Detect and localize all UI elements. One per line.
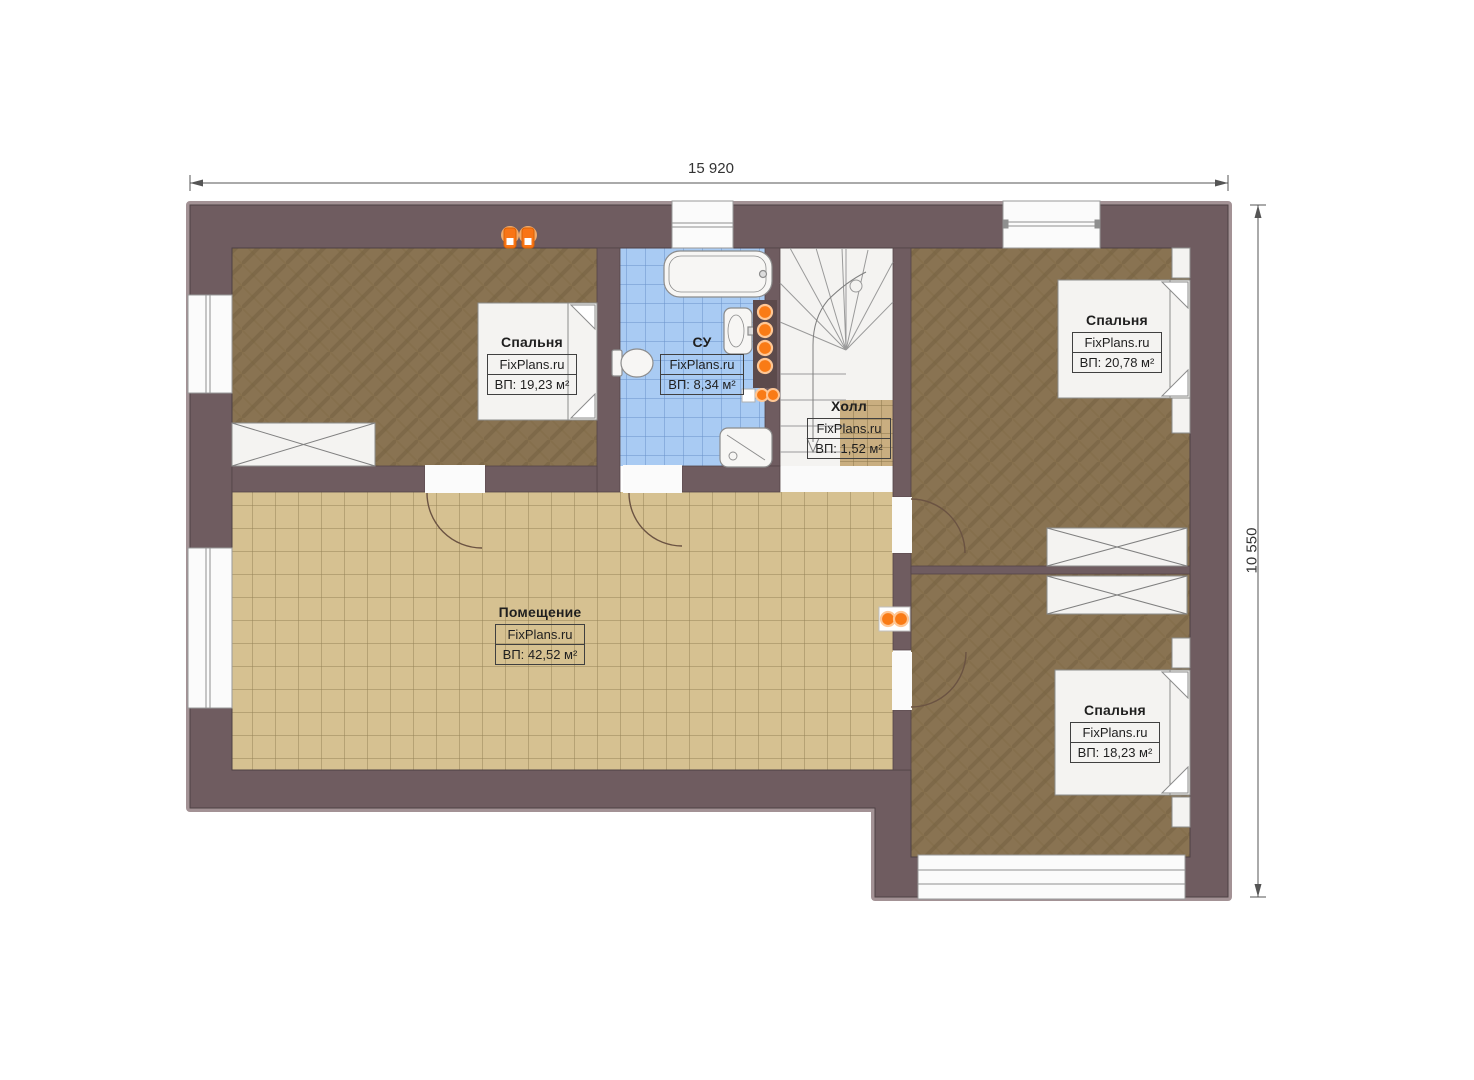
bed-icon	[478, 303, 597, 420]
bathtub-icon	[664, 251, 772, 297]
wall-bedroom1-south-b	[485, 466, 597, 492]
window-top-center	[672, 201, 733, 248]
bedroom-3-furniture	[1047, 576, 1190, 827]
nightstand-icon	[1172, 248, 1190, 278]
dimension-top	[190, 175, 1228, 191]
nightstand-icon	[1172, 398, 1190, 433]
radiator-dot-icon	[758, 341, 772, 355]
dimension-width-label: 15 920	[671, 160, 751, 177]
floor-plan: 15 920 10 550 Спальня FixPlans.ru ВП: 19…	[0, 0, 1474, 1080]
stair-post-icon	[850, 280, 862, 292]
window-top-right	[1003, 201, 1100, 248]
dimension-arrow-icon	[190, 180, 203, 187]
wall-corridor-upper	[893, 553, 911, 650]
hall-floor	[840, 400, 893, 467]
radiator-dot-icon	[758, 359, 772, 373]
radiator-dot-icon	[758, 305, 772, 319]
nightstand-icon	[1172, 638, 1190, 668]
door-opening-bedroom-1	[425, 465, 485, 493]
radiator-dot-icon	[758, 323, 772, 337]
radiator-dot-icon	[767, 389, 779, 401]
wall-corridor-lower	[893, 710, 911, 770]
window-bottom-extension	[918, 855, 1185, 899]
toilet-icon	[621, 349, 653, 377]
wall-between-bedrooms	[911, 566, 1190, 574]
wall-stairs-bedroom2	[893, 248, 911, 497]
corridor-radiator	[879, 607, 910, 631]
door-opening-bedroom-3	[892, 652, 912, 710]
bathtub-faucet-icon	[760, 271, 767, 278]
landing-floor	[780, 466, 893, 492]
wall-bathroom-south	[682, 466, 780, 492]
dimension-arrow-icon	[1215, 180, 1228, 187]
dimension-arrow-icon	[1255, 205, 1262, 218]
door-opening-bathroom	[623, 465, 682, 493]
dimension-arrow-icon	[1255, 884, 1262, 897]
radiator-dot-icon	[894, 612, 908, 626]
nightstand-icon	[1172, 797, 1190, 827]
dimension-height-label: 10 550	[1244, 509, 1261, 593]
door-opening-bedroom-2	[892, 497, 912, 553]
wall-bedroom1-south-a	[232, 466, 425, 492]
main-room-floor	[232, 492, 893, 770]
